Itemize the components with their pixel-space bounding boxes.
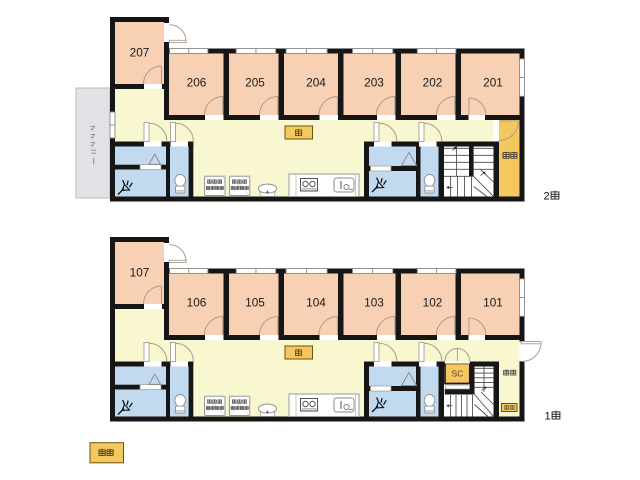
svg-text:104: 104 — [306, 296, 326, 310]
svg-text:207: 207 — [130, 46, 150, 60]
svg-text:206: 206 — [187, 76, 207, 90]
svg-text:203: 203 — [364, 76, 384, 90]
svg-text:205: 205 — [245, 76, 265, 90]
svg-text:SC: SC — [451, 369, 463, 379]
svg-text:101: 101 — [483, 296, 503, 310]
svg-text:103: 103 — [364, 296, 384, 310]
svg-text:107: 107 — [130, 266, 150, 280]
svg-text:2: 2 — [544, 191, 550, 203]
svg-text:204: 204 — [306, 76, 326, 90]
svg-text:202: 202 — [423, 76, 443, 90]
svg-text:102: 102 — [423, 296, 443, 310]
svg-text:106: 106 — [187, 296, 207, 310]
svg-text:1: 1 — [545, 411, 551, 423]
svg-text:201: 201 — [483, 76, 503, 90]
svg-text:105: 105 — [245, 296, 265, 310]
